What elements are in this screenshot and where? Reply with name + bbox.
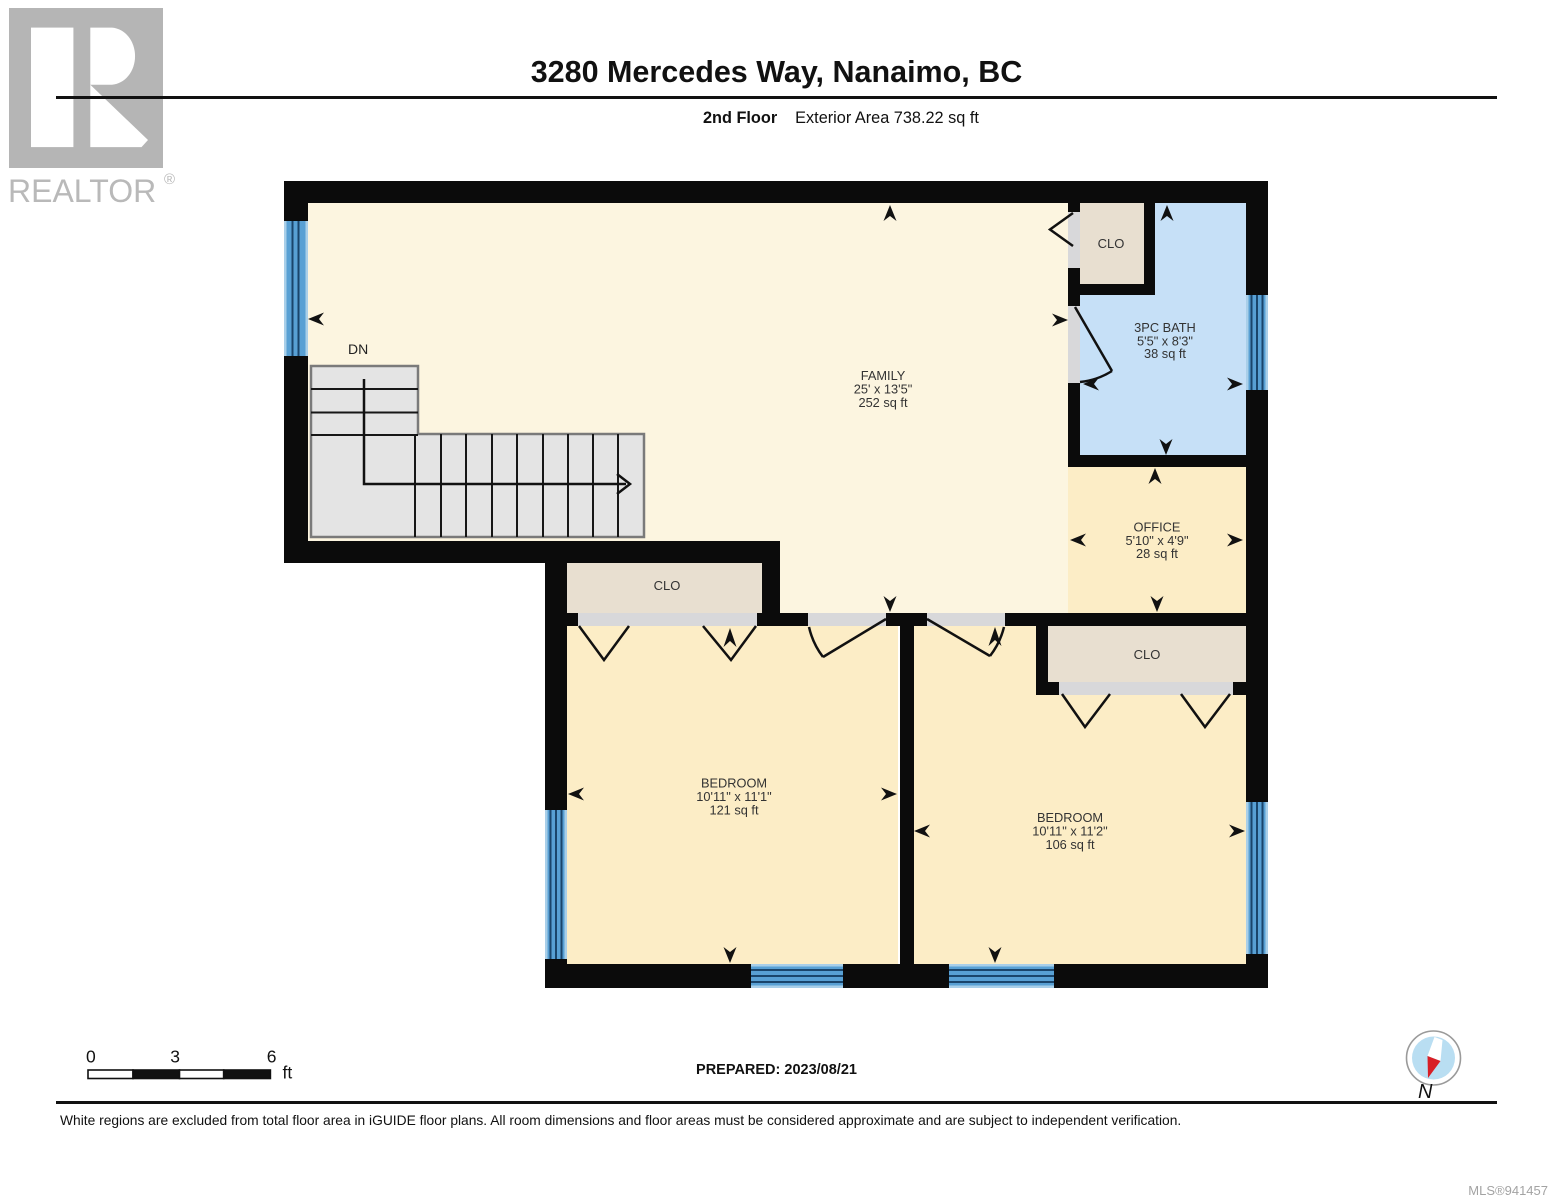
- svg-text:38 sq ft: 38 sq ft: [1144, 346, 1186, 361]
- svg-text:CLO: CLO: [1134, 647, 1161, 662]
- svg-text:252 sq ft: 252 sq ft: [858, 395, 908, 410]
- svg-text:121 sq ft: 121 sq ft: [709, 803, 759, 818]
- svg-text:CLO: CLO: [1098, 236, 1125, 251]
- svg-text:106 sq ft: 106 sq ft: [1045, 837, 1095, 852]
- svg-text:CLO: CLO: [654, 578, 681, 593]
- svg-text:28 sq ft: 28 sq ft: [1136, 546, 1178, 561]
- svg-text:DN: DN: [348, 341, 368, 357]
- svg-text:N: N: [1418, 1081, 1433, 1103]
